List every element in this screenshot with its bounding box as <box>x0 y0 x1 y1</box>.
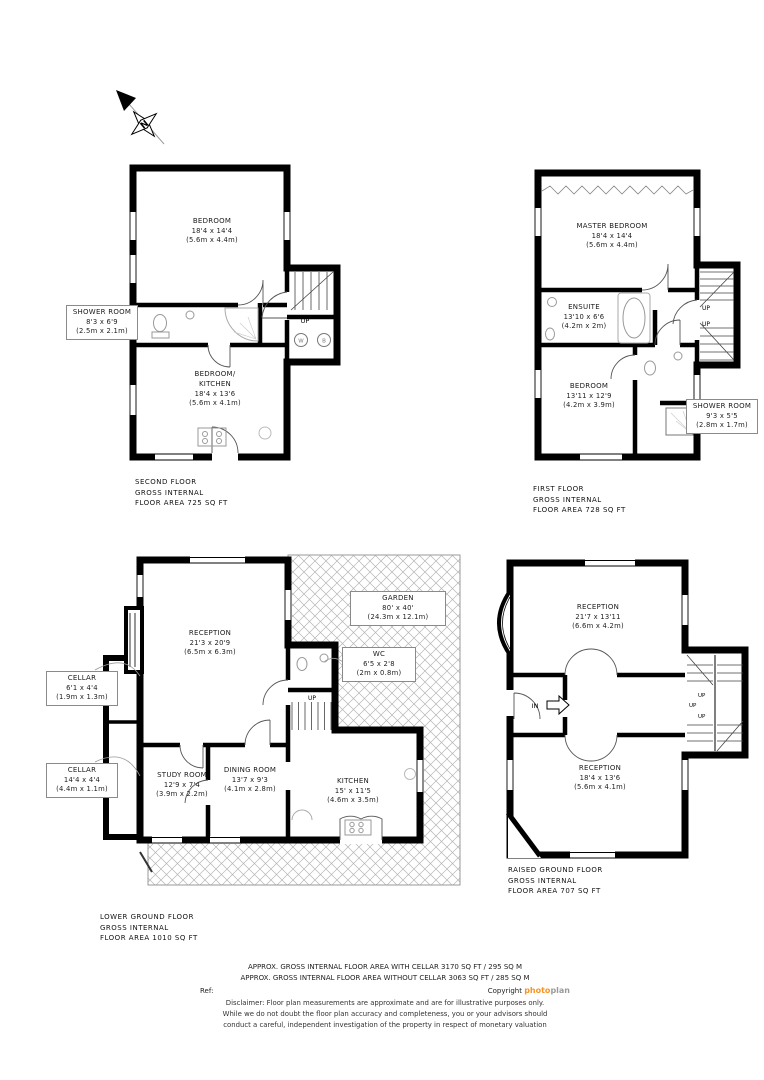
room-label-master-bedroom-1f: MASTER BEDROOM 18'4 x 14'4 (5.6m x 4.4m) <box>576 222 647 251</box>
first-floor-plan: UP UP <box>530 160 760 520</box>
svg-text:B: B <box>322 339 326 345</box>
room-label-reception-lg: RECEPTION 21'3 x 20'9 (6.5m x 6.3m) <box>184 629 236 658</box>
room-label-wc-lg: WC 6'5 x 2'8 (2m x 0.8m) <box>342 647 416 682</box>
approx-area-with-cellar: APPROX. GROSS INTERNAL FLOOR AREA WITH C… <box>200 963 570 972</box>
room-label-reception-front-rg: RECEPTION 21'7 x 13'11 (6.6m x 4.2m) <box>572 603 624 632</box>
room-label-bedroom-2f: BEDROOM 18'4 x 14'4 (5.6m x 4.4m) <box>186 217 238 246</box>
footer: APPROX. GROSS INTERNAL FLOOR AREA WITH C… <box>200 963 570 1033</box>
approx-area-without-cellar: APPROX. GROSS INTERNAL FLOOR AREA WITHOU… <box>200 974 570 983</box>
room-label-ensuite-1f: ENSUITE 13'10 x 6'6 (4.2m x 2m) <box>562 303 607 332</box>
ref-label: Ref: <box>200 987 213 996</box>
first-floor-title: FIRST FLOOR GROSS INTERNAL FLOOR AREA 72… <box>533 484 626 516</box>
lower-ground-up-label: UP <box>308 695 316 702</box>
first-floor-up-label-2: UP <box>702 321 710 328</box>
second-floor-title: SECOND FLOOR GROSS INTERNAL FLOOR AREA 7… <box>135 477 228 509</box>
room-label-kitchen-lg: KITCHEN 15' x 11'5 (4.6m x 3.5m) <box>327 777 379 806</box>
raised-ground-up-label-2: UP <box>689 703 697 709</box>
room-label-dining-lg: DINING ROOM 13'7 x 9'3 (4.1m x 2.8m) <box>224 766 276 795</box>
second-floor-up-label: UP <box>301 317 310 325</box>
room-label-study-lg: STUDY ROOM 12'9 x 7'4 (3.9m x 2.2m) <box>156 771 208 800</box>
bay-window <box>126 608 142 672</box>
raised-ground-up-label-1: UP <box>698 693 706 699</box>
compass-needle: N <box>116 90 167 147</box>
photoplan-logo: photoplan <box>524 986 570 995</box>
raised-ground-up-label-3: UP <box>698 714 706 720</box>
room-label-shower-room-1f: SHOWER ROOM 9'3 x 5'5 (2.8m x 1.7m) <box>686 399 758 434</box>
disclaimer-line-2: While we do not doubt the floor plan acc… <box>200 1010 570 1019</box>
second-floor-walls <box>133 168 337 457</box>
raised-ground-floor-title: RAISED GROUND FLOOR GROSS INTERNAL FLOOR… <box>508 865 603 897</box>
lower-ground-floor-title: LOWER GROUND FLOOR GROSS INTERNAL FLOOR … <box>100 912 198 944</box>
floorplan-page: N UP W <box>0 0 764 1080</box>
room-label-cellar-long-lg: CELLAR 14'4 x 4'4 (4.4m x 1.1m) <box>46 763 118 798</box>
copyright-line: Copyright photoplan <box>488 986 570 997</box>
disclaimer-line-1: Disclaimer: Floor plan measurements are … <box>200 999 570 1008</box>
room-label-bedroom-kitchen-2f: BEDROOM/ KITCHEN 18'4 x 13'6 (5.6m x 4.1… <box>189 370 241 409</box>
room-label-reception-back-rg: RECEPTION 18'4 x 13'6 (5.6m x 4.1m) <box>574 764 626 793</box>
disclaimer-line-3: conduct a careful, independent investiga… <box>200 1021 570 1030</box>
room-label-garden-lg: GARDEN 80' x 40' (24.3m x 12.1m) <box>350 591 446 626</box>
raised-ground-floor-plan: IN UP UP UP <box>495 555 760 860</box>
room-label-shower-room-2f: SHOWER ROOM 8'3 x 6'9 (2.5m x 2.1m) <box>66 305 138 340</box>
room-label-cellar-small-lg: CELLAR 6'1 x 4'4 (1.9m x 1.3m) <box>46 671 118 706</box>
first-floor-up-label-1: UP <box>702 305 710 312</box>
svg-text:W: W <box>298 339 304 345</box>
compass-north-icon: N <box>110 86 174 152</box>
room-label-bedroom-1f: BEDROOM 13'11 x 12'9 (4.2m x 3.9m) <box>563 382 615 411</box>
entrance-in-label: IN <box>532 702 539 710</box>
